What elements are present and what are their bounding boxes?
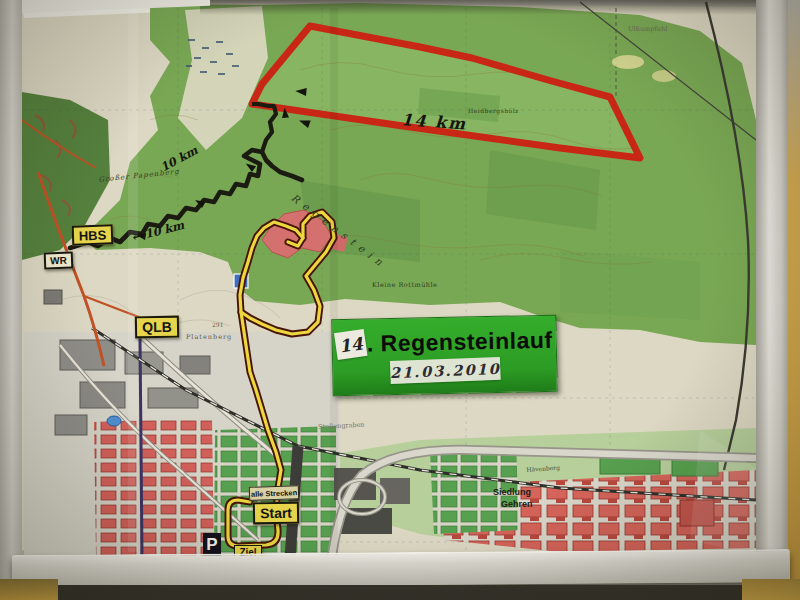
map-label-rottmuehle: Kleine Rottmühle: [372, 281, 437, 289]
sign-start: Start: [253, 502, 299, 525]
paper-roll-right-edge: [756, 0, 789, 600]
sign-qlb: QLB: [135, 316, 179, 339]
map-label-elevation: 291: [212, 321, 223, 328]
map-top-shadow: [200, 0, 800, 15]
topographic-map: [0, 0, 800, 600]
event-sign: 14 . Regensteinlauf 21.03.2010: [331, 315, 558, 397]
shadow-below-tray: [0, 585, 800, 600]
event-title: . Regensteinlauf: [367, 327, 553, 358]
photo-of-race-map: Großer Papenberg Regenstein Kleine Rottm…: [0, 0, 800, 600]
map-label-siedlung: Siedlung: [493, 487, 531, 497]
wall-corner-bottom-left: [0, 579, 58, 600]
whiteboard-pen-tray: [12, 549, 790, 588]
wall-corner-bottom-right: [742, 579, 800, 600]
event-title-row: 14 . Regensteinlauf: [336, 327, 553, 359]
wall-right-edge: [788, 0, 800, 600]
sign-wr: WR: [44, 251, 74, 269]
map-label-ulsumpfuhl: Ulßumpfuhl: [628, 25, 667, 33]
sign-hbs: HBS: [72, 224, 114, 245]
wall-left-edge: [0, 0, 22, 600]
event-date-patch: 21.03.2010: [389, 357, 500, 384]
map-label-gehren: Gehren: [501, 499, 533, 509]
sign-alle-strecken: alle Strecken: [249, 485, 299, 501]
event-number-patch: 14: [334, 329, 368, 360]
map-label-platenberg: Platenberg: [186, 333, 232, 341]
map-label-heidholz: Heidbergshölz: [468, 107, 519, 114]
